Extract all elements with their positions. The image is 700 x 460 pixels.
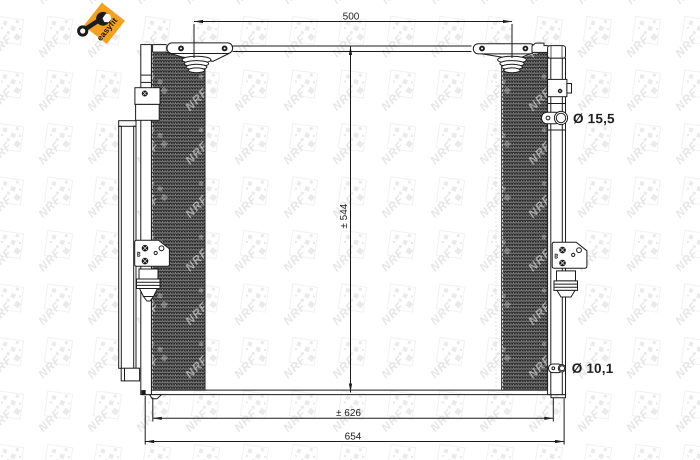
svg-text:500: 500: [343, 11, 360, 22]
svg-text:± 626: ± 626: [336, 408, 361, 419]
svg-text:654: 654: [345, 431, 362, 442]
svg-text:± 544: ± 544: [339, 203, 350, 228]
svg-text:Ø 10,1: Ø 10,1: [572, 361, 614, 376]
svg-text:Ø 15,5: Ø 15,5: [573, 111, 615, 126]
